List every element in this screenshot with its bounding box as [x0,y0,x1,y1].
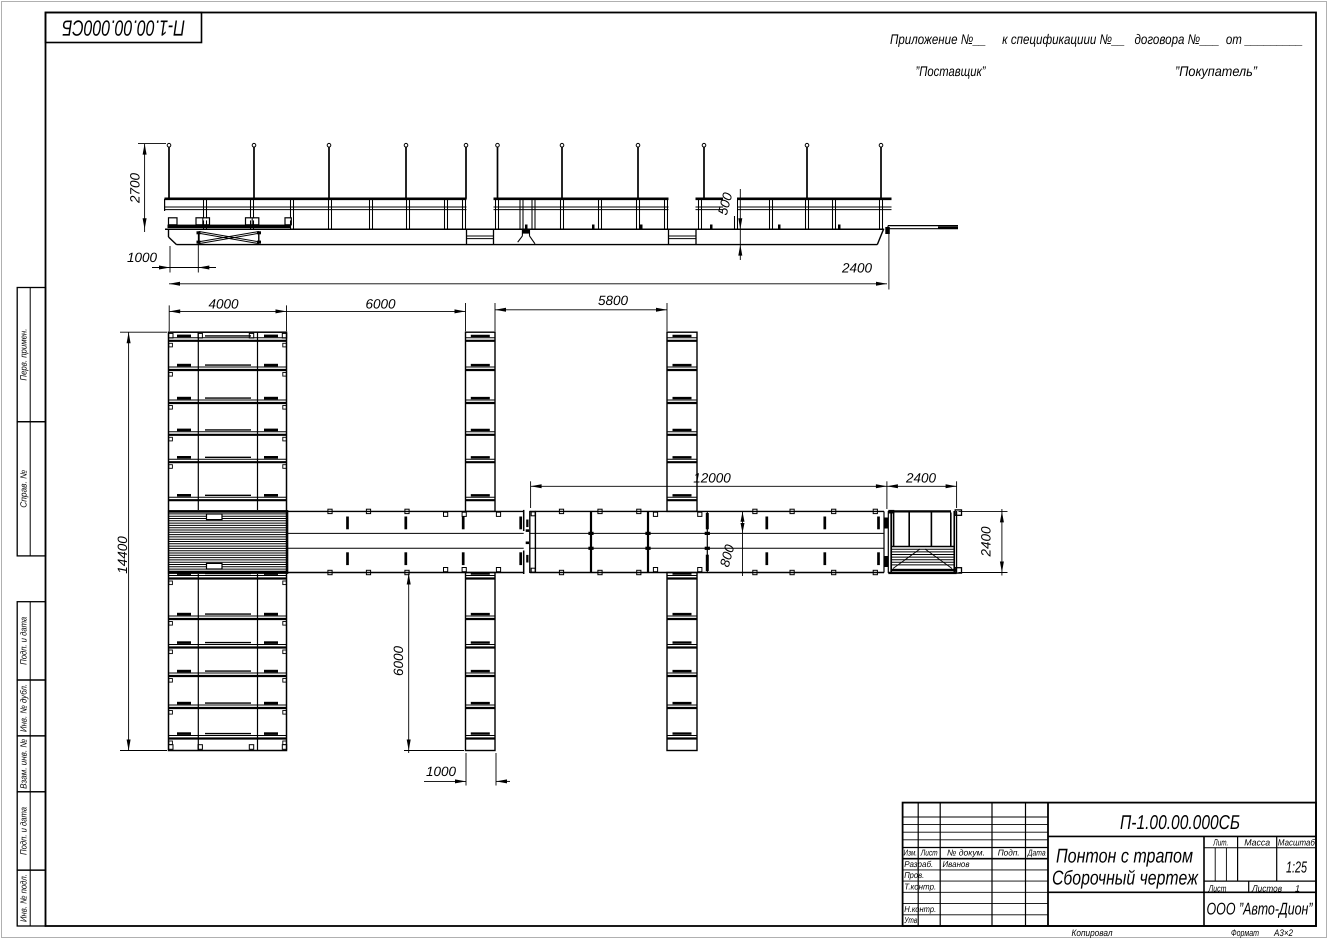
svg-text:5800: 5800 [598,293,629,308]
svg-text:П-1.00.00.000СБ: П-1.00.00.000СБ [1120,812,1240,834]
svg-text:Взам. инв. №: Взам. инв. № [18,739,28,789]
svg-text:Подп. и дата: Подп. и дата [19,807,29,855]
svg-text:Утв.: Утв. [903,915,919,925]
svg-text:”Поставщик”: ”Поставщик” [916,63,987,79]
svg-text:Н.контр.: Н.контр. [904,904,936,914]
svg-text:6000: 6000 [391,645,406,676]
svg-text:Понтон с трапом: Понтон с трапом [1056,846,1193,868]
svg-text:1000: 1000 [426,764,457,779]
svg-text:2400: 2400 [841,261,873,276]
svg-text:1: 1 [1295,883,1300,893]
svg-text:Сборочный чертеж: Сборочный чертеж [1052,868,1199,890]
svg-text:12000: 12000 [693,471,731,486]
svg-text:Справ. №: Справ. № [19,470,29,508]
svg-text:ООО ”Авто-Дион”: ООО ”Авто-Дион” [1207,900,1314,919]
svg-text:Инв. № дубл.: Инв. № дубл. [19,684,29,732]
svg-text:Дата: Дата [1027,848,1046,858]
svg-text:2700: 2700 [128,172,143,204]
svg-text:14400: 14400 [115,536,130,574]
svg-text:Инв. № подл.: Инв. № подл. [18,874,28,922]
svg-text:Масштаб: Масштаб [1278,837,1316,847]
svg-text:6000: 6000 [365,297,396,312]
svg-text:Изм.: Изм. [904,848,918,858]
svg-text:Копировал: Копировал [1072,928,1114,939]
svg-text:П-1.00.00.000СБ: П-1.00.00.000СБ [62,16,185,41]
svg-text:Лист: Лист [1208,883,1227,893]
svg-text:Листов: Листов [1251,883,1282,893]
svg-text:А3×2: А3×2 [1273,928,1293,939]
svg-text:Разраб.: Разраб. [904,859,933,869]
svg-text:Масса: Масса [1244,837,1270,847]
svg-text:2400: 2400 [905,471,937,486]
svg-text:Иванов: Иванов [943,859,971,869]
svg-text:Т.контр.: Т.контр. [904,881,936,891]
svg-text:2400: 2400 [979,526,994,558]
svg-text:”Покупатель”: ”Покупатель” [1175,63,1258,79]
svg-text:4000: 4000 [208,297,239,312]
svg-text:№ докум.: № докум. [947,848,985,858]
svg-text:Перв. примен.: Перв. примен. [19,329,29,381]
svg-text:Лит.: Лит. [1213,837,1229,847]
svg-text:Пров.: Пров. [904,870,924,880]
svg-text:Лист: Лист [920,848,938,858]
svg-text:Подп.: Подп. [998,848,1020,858]
svg-text:1000: 1000 [127,250,158,265]
svg-text:Подп. и дата: Подп. и дата [19,617,29,665]
svg-text:Приложение №__ к специфика: Приложение №__ к спецификациии №__ догов… [890,31,1303,47]
svg-text:Формат: Формат [1231,928,1259,939]
svg-text:1:25: 1:25 [1286,860,1307,877]
